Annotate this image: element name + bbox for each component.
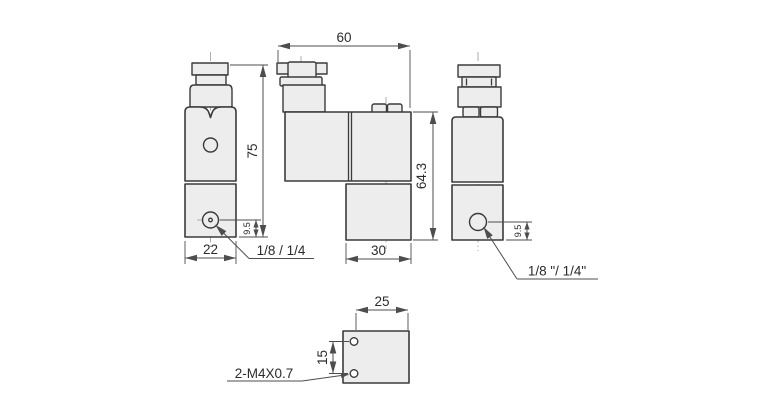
valve-dimension-drawing: 75 9.5 22 1/8 / 1/4 [0,0,780,420]
front-dim-width: 22 [185,241,236,264]
side-view: 60 64.3 30 [277,30,438,264]
side-valve-lower-body [346,184,411,240]
bottom-thread-label: 2-M4X0.7 [235,366,294,381]
rear-coil-body [452,117,503,182]
rear-terminal-left [463,107,479,117]
front-dim-width-label: 22 [203,242,218,257]
rear-port-label: 1/8 "/ 1/4" [528,264,587,279]
rear-connector-housing [458,87,501,107]
rear-dim-port-offset-label: 9.5 [513,225,523,238]
front-dim-height-label: 75 [245,143,260,158]
front-connector-housing [190,85,232,107]
bottom-view: 25 15 2-M4X0.7 [227,294,409,383]
side-dim-length-label: 60 [336,30,351,45]
bottom-mounting-hole-bottom [350,370,358,378]
rear-connector-cap [458,65,500,77]
side-connector-screw [288,62,316,78]
side-dim-body-width: 30 [346,243,411,264]
side-dim-height: 64.3 [413,112,438,240]
side-dim-body-width-label: 30 [371,243,386,258]
rear-view: 9.5 1/8 "/ 1/4" [452,52,598,279]
rear-valve-body [452,185,503,240]
front-connector-cap [192,63,228,75]
front-port-label: 1/8 / 1/4 [257,243,306,258]
bottom-mounting-hole-top [350,338,358,346]
leader-line [302,375,349,382]
front-dim-port-offset-label: 9.5 [242,222,252,235]
bottom-dim-hole-spacing-label: 15 [315,350,330,365]
front-connector-neck [196,75,226,85]
front-valve-body [185,184,236,237]
front-indicator-circle [204,138,218,152]
bottom-dim-width: 25 [356,294,408,330]
rear-terminal-right [481,107,498,117]
technical-drawing-page: 75 9.5 22 1/8 / 1/4 [0,0,780,420]
side-dim-height-label: 64.3 [414,163,429,189]
bottom-dim-width-label: 25 [374,294,389,309]
side-connector-housing [283,85,325,112]
